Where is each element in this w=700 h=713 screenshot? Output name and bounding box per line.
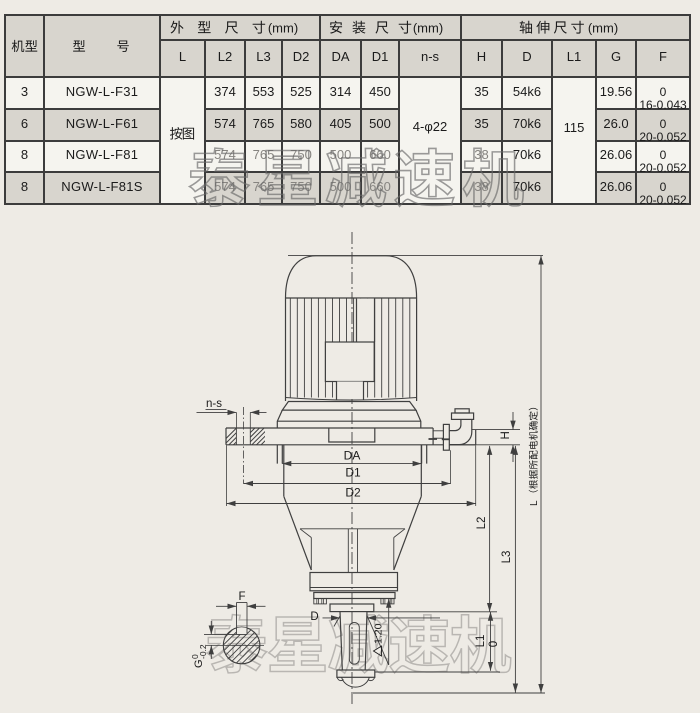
svg-text:D: D	[310, 611, 318, 623]
svg-text:G: G	[193, 659, 205, 668]
svg-text:H: H	[500, 431, 512, 439]
svg-text:L1: L1	[475, 635, 487, 648]
svg-text:(mm): (mm)	[413, 21, 443, 36]
svg-text:n-s: n-s	[206, 398, 222, 410]
svg-text:L: L	[529, 500, 540, 506]
svg-text:L3: L3	[501, 551, 513, 564]
svg-text:(mm): (mm)	[588, 21, 618, 36]
svg-text:1:20: 1:20	[373, 623, 385, 644]
svg-text:L2: L2	[476, 517, 488, 530]
svg-text:F: F	[238, 591, 245, 603]
svg-text:D1: D1	[345, 466, 361, 480]
svg-text:DA: DA	[344, 449, 361, 463]
svg-text:-0.2: -0.2	[198, 644, 208, 659]
svg-text:0: 0	[488, 641, 500, 647]
svg-text:D2: D2	[345, 486, 361, 500]
svg-text:(mm): (mm)	[268, 21, 298, 36]
